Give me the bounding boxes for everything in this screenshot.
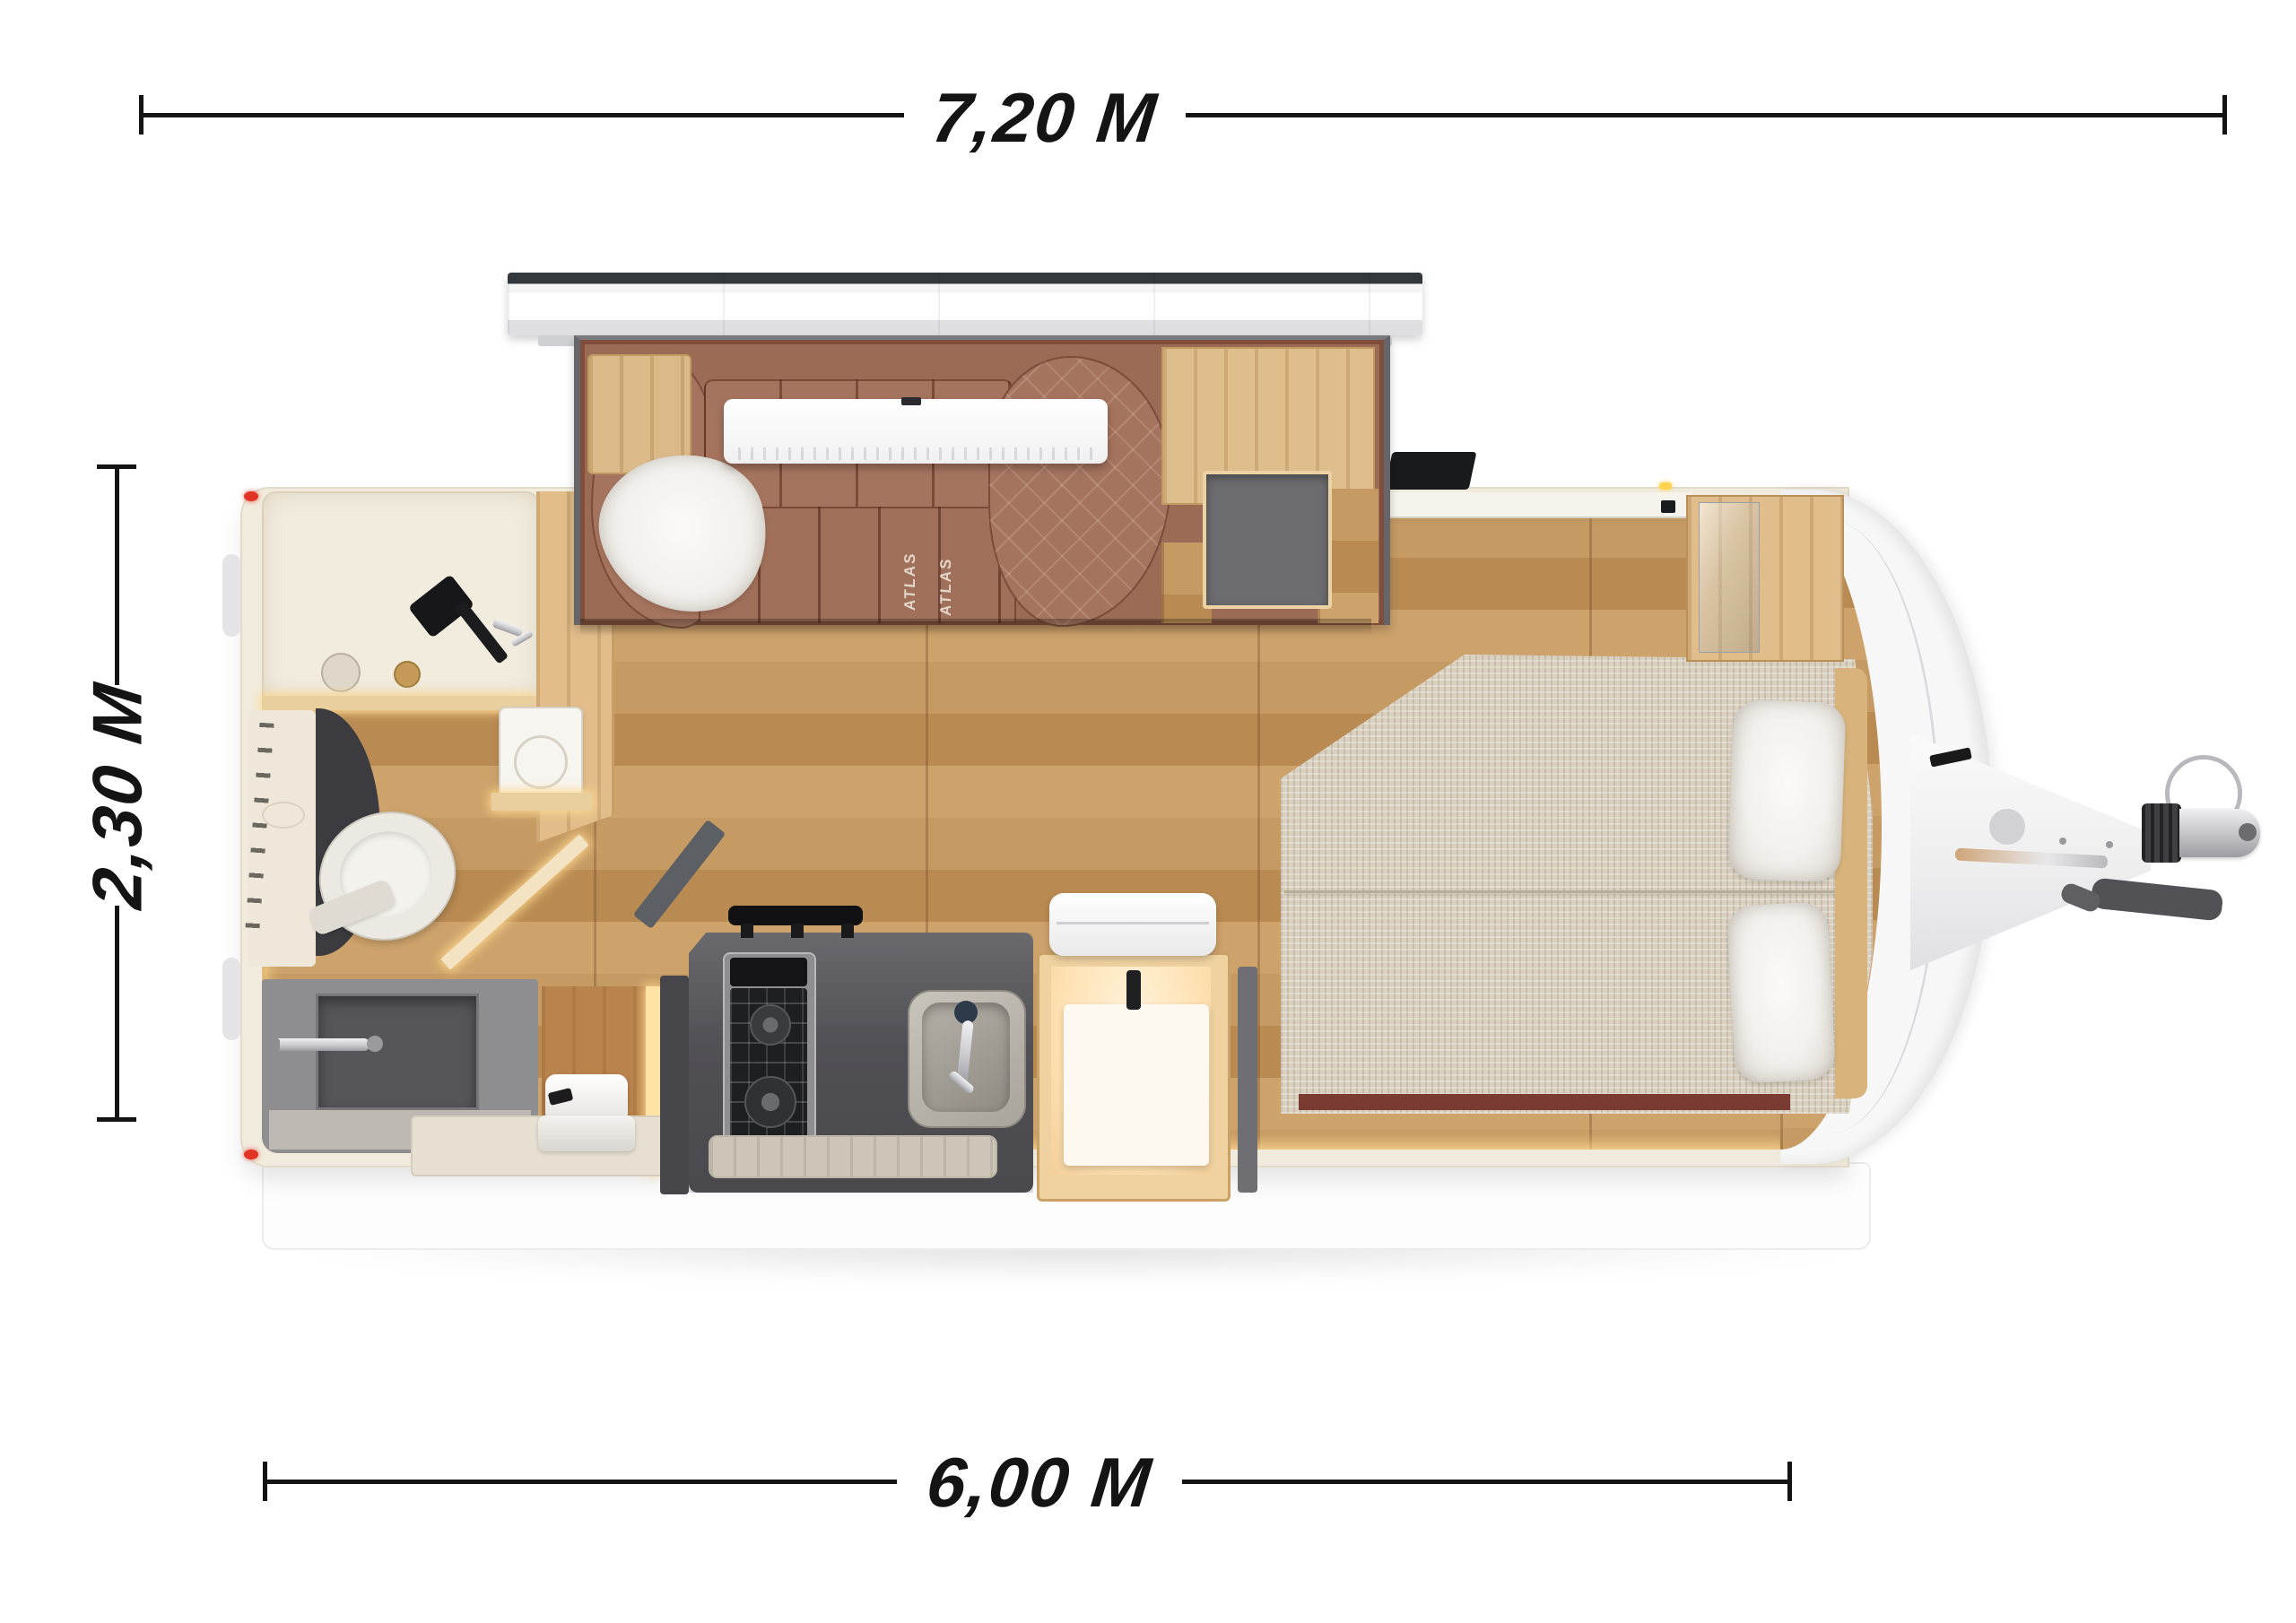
heater-shelf (491, 793, 592, 811)
coupling-tip (2239, 823, 2257, 841)
hob-burner (744, 1076, 796, 1128)
sofa-corner-cushion-right (988, 356, 1171, 627)
ac-unit-grille-icon (738, 447, 1093, 460)
fridge-front (1064, 1004, 1209, 1166)
hob-control-strip (730, 958, 807, 986)
slide-out-floor-shadow (580, 619, 1371, 635)
water-heater-dial-icon (514, 735, 568, 789)
hob-lid-foot (791, 924, 804, 938)
dim-line-segment (115, 467, 119, 685)
side-bumper-strip (222, 554, 240, 637)
kitchen-end-panel (660, 976, 689, 1194)
window-sill (1385, 492, 1692, 518)
marker-light-red (244, 491, 258, 501)
bed-base-edge (1299, 1094, 1790, 1110)
shower-basin-recess (316, 994, 479, 1110)
bed-pillow (1728, 699, 1847, 882)
drawbar-bolt (2106, 841, 2113, 848)
sofa-logo-text: ATLAS (937, 529, 955, 617)
sofa-logo-text: ATLAS (901, 524, 919, 612)
bed-pillow (1726, 901, 1836, 1084)
marker-light-yellow (1659, 482, 1672, 490)
dinette-counter (1203, 471, 1332, 609)
coupling-bellows (2142, 803, 2181, 863)
kitchen-side-panel (1238, 967, 1257, 1193)
coolbox-appliance (1049, 893, 1216, 956)
caravan-floorplan-canvas: 7,20 M 2,30 M 6,00 M (0, 0, 2296, 1623)
window-latch-icon (1661, 500, 1675, 513)
wall-recess-detail (262, 802, 305, 829)
drawbar-bolt (2059, 838, 2066, 845)
towel-bar-bracket (269, 1038, 280, 1051)
side-bumper-strip (222, 958, 240, 1040)
ac-unit-sensor (901, 397, 921, 405)
fridge-handle (1126, 970, 1141, 1010)
cabinet-glass-door (1699, 502, 1760, 653)
dim-line-segment (141, 113, 904, 117)
bathroom-shelf-edge (262, 696, 536, 710)
slide-out-roof-rail (508, 273, 1422, 335)
towel-bar-icon (269, 1038, 370, 1051)
towel-bar-knob (367, 1036, 383, 1052)
coolbox-seam (1057, 922, 1209, 924)
shower-drain (394, 661, 421, 688)
hob-lid-handle (728, 906, 863, 925)
dim-line-segment (265, 1480, 897, 1484)
jockey-wheel-mount (1989, 809, 2025, 845)
countertop-appliance-base (538, 1115, 635, 1151)
tv-flatscreen (1385, 452, 1477, 490)
hob-lid-foot (841, 924, 854, 938)
hob-burner (750, 1004, 791, 1046)
dim-line-segment (1182, 1480, 1790, 1484)
mattress-seam (1284, 890, 1867, 893)
shower-drain (321, 653, 361, 692)
dim-line-segment (1186, 113, 2225, 117)
dim-label-width: 2,30 M (77, 679, 159, 912)
hob-lid-foot (741, 924, 753, 938)
entry-step-mat (709, 1135, 997, 1178)
slide-out-dinette: ATLAS ATLAS (574, 335, 1390, 625)
dim-line-segment (115, 906, 119, 1119)
marker-light-red (244, 1150, 258, 1159)
coupling-handle (2091, 877, 2224, 921)
dim-label-total-length: 7,20 M (900, 77, 1190, 159)
dim-label-body-length: 6,00 M (892, 1442, 1187, 1523)
